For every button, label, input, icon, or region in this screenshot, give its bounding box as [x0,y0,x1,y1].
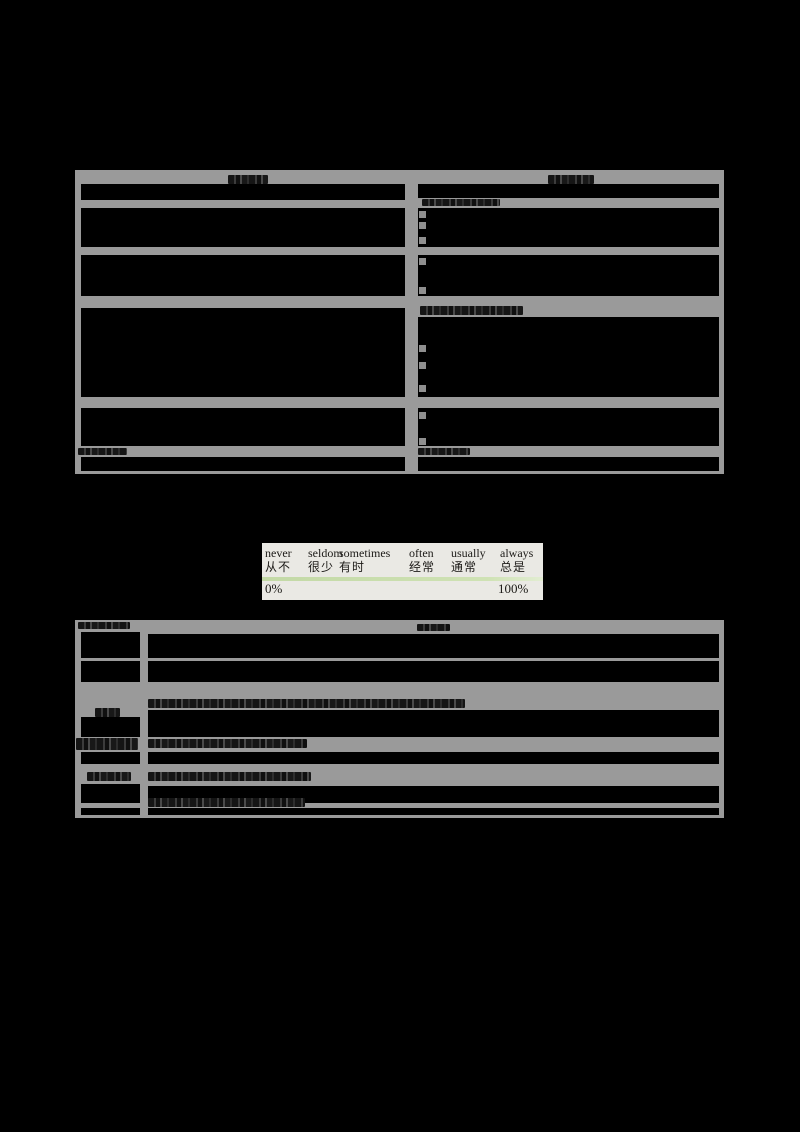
bottom-table-header-left-smudge [78,622,130,629]
text-smudge [422,199,500,206]
text-smudge [87,772,131,781]
table-cell [81,184,405,200]
text-smudge [148,739,307,748]
text-smudge [420,306,523,315]
table-cell [418,457,719,471]
scale-min-label: 0% [265,581,282,597]
list-tick [419,258,426,265]
scale-max-label: 100% [498,581,528,597]
frequency-word-zh: 总是 [500,560,570,574]
top-table-header-left-smudge [228,175,268,184]
table-cell [418,255,719,296]
list-tick [419,237,426,244]
text-smudge [148,699,465,708]
text-smudge [76,738,138,750]
frequency-word-en: sometimes [339,546,409,560]
bottom-table [75,620,724,818]
table-cell [148,808,719,815]
table-cell [418,408,719,446]
table-cell [81,661,140,682]
table-cell [148,634,719,658]
table-cell [418,184,719,198]
table-cell [81,717,140,737]
list-tick [419,345,426,352]
list-tick [419,438,426,445]
table-cell [81,632,140,658]
table-cell [148,710,719,737]
table-cell [418,208,719,247]
table-cell [81,408,405,446]
table-cell [81,784,140,803]
table-cell [81,255,405,296]
table-cell [81,808,140,815]
frequency-column: sometimes 有时 [339,546,409,574]
table-cell [81,457,405,471]
list-tick [419,412,426,419]
frequency-scale-panel: never 从不 seldom 很少 sometimes 有时 often 经常… [262,543,543,600]
frequency-word-en: always [500,546,570,560]
table-cell [81,308,405,397]
list-tick [419,211,426,218]
top-table-header-right-smudge [548,175,594,184]
text-smudge [148,798,305,807]
list-tick [419,362,426,369]
table-cell [418,317,719,397]
list-tick [419,222,426,229]
list-tick [419,287,426,294]
text-smudge [418,448,470,455]
text-smudge [78,448,127,455]
bottom-table-header-right-smudge [417,624,450,631]
table-cell [81,208,405,247]
top-table [75,170,724,474]
list-tick [419,385,426,392]
frequency-column: always 总是 [500,546,570,574]
table-cell [148,752,719,764]
table-cell [148,661,719,682]
table-cell [81,752,140,764]
frequency-word-zh: 有时 [339,560,409,574]
text-smudge [148,772,311,781]
text-smudge [95,708,120,717]
